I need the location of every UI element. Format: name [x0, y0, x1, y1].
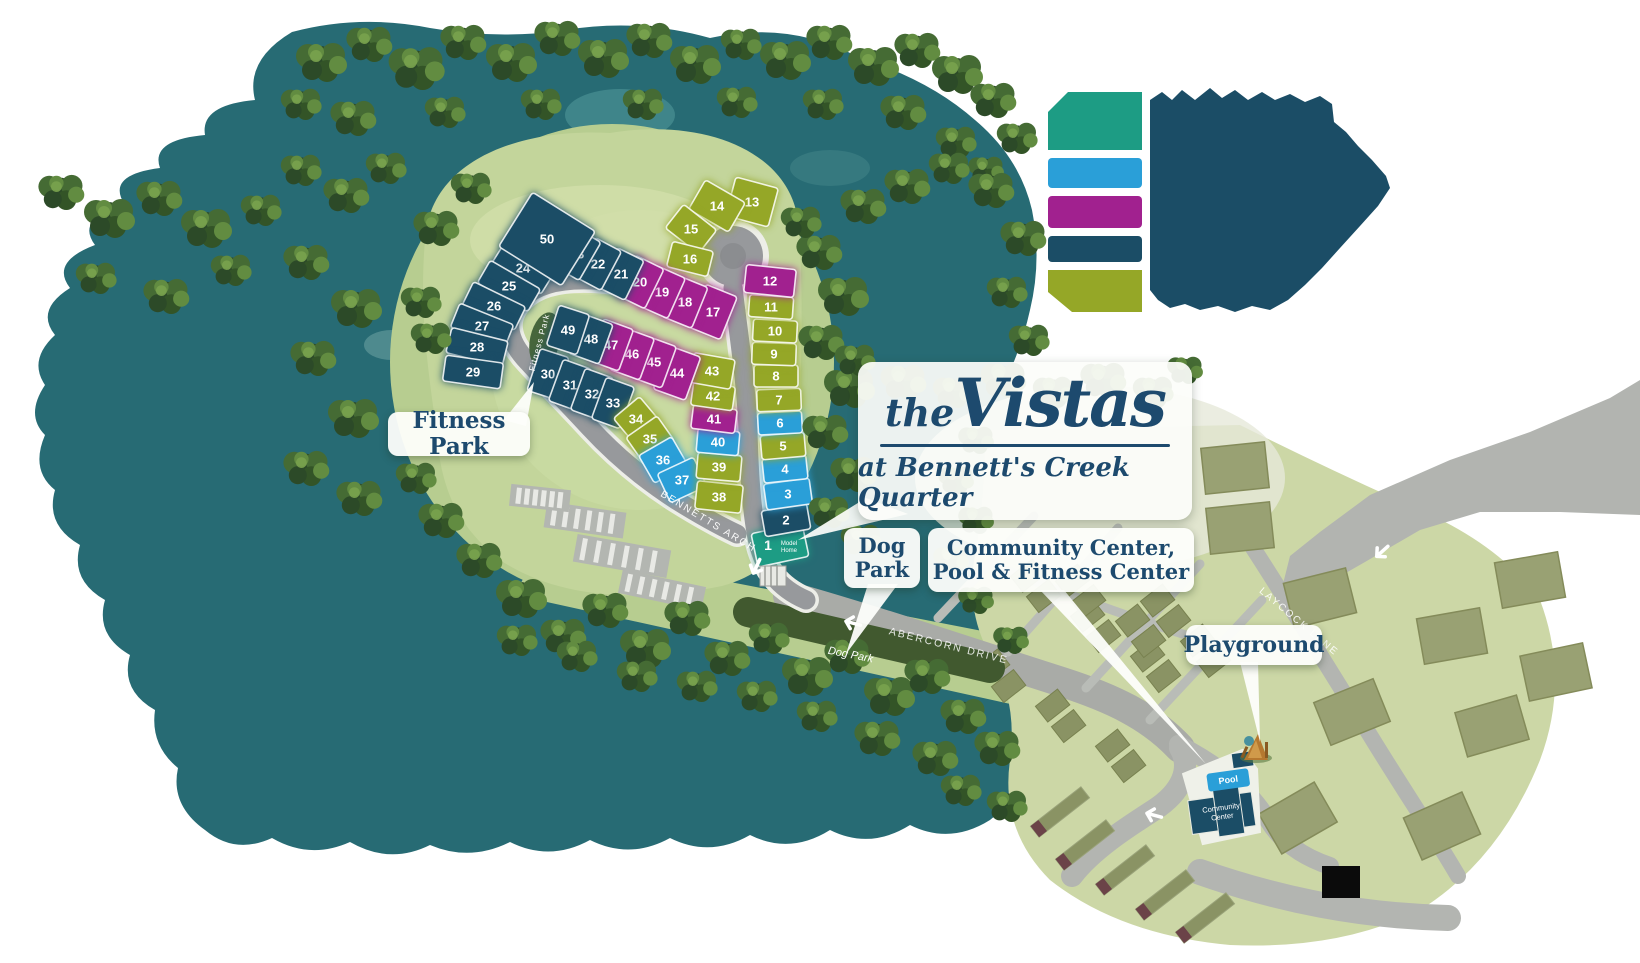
- lot-number: 39: [712, 460, 726, 475]
- legend-swatch-purple: [1048, 196, 1142, 228]
- lot-number: 40: [711, 435, 725, 450]
- lot-parcel[interactable]: 6: [757, 411, 802, 435]
- lot-number: 9: [770, 347, 777, 362]
- lot-number: 25: [502, 279, 516, 294]
- lot-parcel[interactable]: 39: [696, 452, 742, 482]
- lot-number: 22: [591, 257, 605, 272]
- cul-de-sac-island: [720, 243, 746, 269]
- lot-number: 42: [706, 389, 720, 404]
- lot-number: 48: [584, 332, 598, 347]
- lot-number: 44: [670, 366, 685, 381]
- apartment-building: [1206, 502, 1274, 554]
- lot-number: 15: [684, 222, 698, 237]
- dog-park-callout: Dog Park: [844, 528, 920, 588]
- pond: [790, 150, 870, 186]
- lot-number: 34: [629, 412, 644, 427]
- lot-number: 4: [781, 462, 789, 477]
- lot-number: 41: [707, 412, 721, 427]
- apartment-building: [1494, 552, 1565, 608]
- title-name: Vistas: [954, 364, 1165, 442]
- lot-number: 49: [561, 323, 575, 338]
- lot-number: 28: [470, 340, 484, 355]
- lot-number: 3: [784, 487, 791, 502]
- community-title: theVistas: [885, 370, 1165, 436]
- lot-number: 45: [647, 355, 661, 370]
- lot-number: 14: [710, 199, 725, 214]
- playground-label: Playground: [1184, 633, 1325, 658]
- lot-number: 10: [768, 324, 782, 339]
- legend-swatch-teal: [1048, 92, 1142, 150]
- title-prefix: the: [885, 390, 954, 435]
- playground-callout: Playground: [1186, 625, 1322, 665]
- dog-park-label-line2: Park: [855, 558, 909, 582]
- lot-number: 6: [776, 416, 783, 431]
- lot-number: 13: [745, 195, 759, 210]
- lot-number: 18: [678, 295, 692, 310]
- lot-number: 35: [643, 432, 657, 447]
- community-center-callout: Community Center, Pool & Fitness Center: [928, 528, 1194, 592]
- tree-cluster: [970, 83, 1016, 118]
- legend-text-blob: [1150, 88, 1390, 312]
- lot-number: 7: [775, 393, 782, 408]
- lot-number: 2: [782, 513, 789, 528]
- lot-parcel[interactable]: 9: [752, 342, 797, 366]
- lot-number: 8: [772, 369, 779, 384]
- svg-text:Home: Home: [781, 548, 798, 554]
- legend-swatch-blue: [1048, 158, 1142, 188]
- lot-number: 36: [656, 453, 670, 468]
- lot-number: 17: [706, 305, 720, 320]
- legend-swatch-olive: [1048, 270, 1142, 312]
- lot-parcel[interactable]: 7: [757, 388, 802, 412]
- legend: [1048, 88, 1390, 312]
- lot-number: 50: [540, 232, 554, 247]
- lot-parcel[interactable]: 11: [748, 294, 793, 319]
- lot-number: 30: [541, 367, 555, 382]
- tree-cluster: [38, 175, 84, 210]
- lot-number: 11: [764, 300, 778, 315]
- lot-number: 33: [606, 396, 620, 411]
- lot-number: 27: [475, 319, 489, 334]
- lot-number: 43: [705, 364, 719, 379]
- model-home-label: Model: [781, 541, 797, 547]
- lot-number: 26: [487, 299, 501, 314]
- lot-number: 12: [763, 274, 777, 289]
- apartment-building: [1201, 442, 1269, 494]
- lot-number: 32: [585, 387, 599, 402]
- fitness-park-label: Fitness Park: [388, 408, 530, 460]
- dog-park-label-line1: Dog: [859, 534, 906, 558]
- model-home-number: 1: [764, 537, 772, 553]
- fitness-park-callout: Fitness Park: [388, 412, 530, 456]
- lot-number: 37: [675, 473, 689, 488]
- utility-pad: [1322, 866, 1360, 898]
- title-subtitle: at Bennett's Creek Quarter: [858, 453, 1192, 513]
- lot-parcel[interactable]: 8: [754, 365, 798, 387]
- title-divider: [880, 444, 1170, 447]
- model-home-house-icon: [760, 566, 786, 586]
- lot-parcel[interactable]: 12: [744, 264, 797, 297]
- legend-swatch-navy: [1048, 236, 1142, 262]
- lot-parcel[interactable]: 10: [752, 319, 797, 343]
- lot-number: 21: [614, 267, 628, 282]
- lot-number: 31: [563, 378, 577, 393]
- title-box: theVistas at Bennett's Creek Quarter: [858, 362, 1192, 520]
- lot-number: 19: [655, 285, 669, 300]
- community-label-line1: Community Center,: [947, 536, 1175, 560]
- site-map: 1ModelHome234567891011121314151617181920…: [0, 0, 1640, 963]
- lot-parcel[interactable]: 5: [760, 432, 806, 460]
- community-label-line2: Pool & Fitness Center: [933, 560, 1189, 584]
- lot-number: 29: [466, 365, 480, 380]
- lot-number: 5: [779, 439, 786, 454]
- lot-number: 38: [712, 490, 726, 505]
- lot-number: 16: [683, 252, 697, 267]
- lot-parcel[interactable]: 38: [695, 481, 744, 514]
